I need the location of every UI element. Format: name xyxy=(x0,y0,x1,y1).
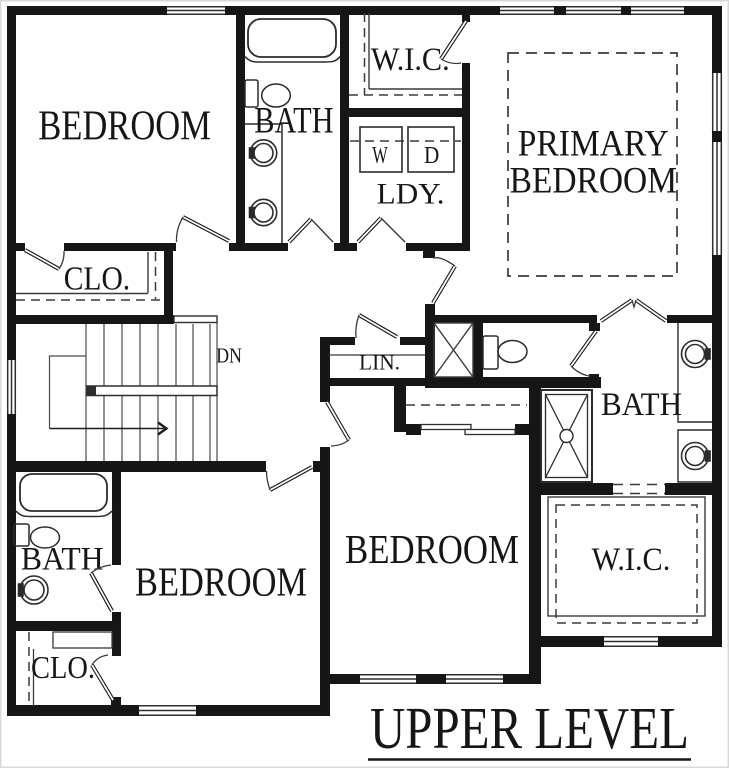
svg-text:BEDROOM: BEDROOM xyxy=(345,526,519,572)
svg-text:PRIMARY: PRIMARY xyxy=(518,123,669,164)
svg-text:LDY.: LDY. xyxy=(377,177,445,210)
svg-text:BEDROOM: BEDROOM xyxy=(38,104,211,150)
svg-text:D: D xyxy=(424,142,439,169)
svg-text:CLO.: CLO. xyxy=(31,650,95,685)
svg-text:DN: DN xyxy=(216,343,242,367)
svg-text:W.I.C.: W.I.C. xyxy=(592,542,671,578)
svg-text:W: W xyxy=(372,142,388,169)
svg-text:CLO.: CLO. xyxy=(64,261,131,298)
svg-text:BATH: BATH xyxy=(21,541,104,577)
svg-text:BEDROOM: BEDROOM xyxy=(135,559,307,605)
svg-text:BATH: BATH xyxy=(254,99,333,140)
svg-text:W.I.C.: W.I.C. xyxy=(371,42,450,78)
svg-text:BATH: BATH xyxy=(601,387,682,423)
svg-text:LIN.: LIN. xyxy=(359,350,400,375)
svg-text:BEDROOM: BEDROOM xyxy=(510,160,677,201)
svg-text:UPPER LEVEL: UPPER LEVEL xyxy=(370,695,689,761)
